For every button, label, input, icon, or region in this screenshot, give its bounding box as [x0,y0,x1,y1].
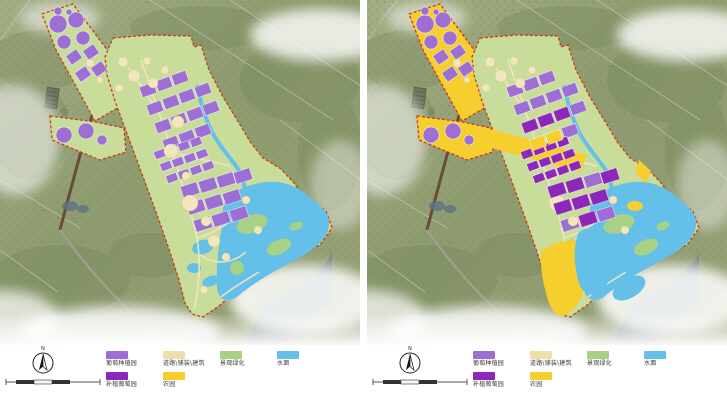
scale-bar [371,376,471,388]
legend-item-greening: 景观绿化 [587,351,644,371]
legend-item-replant: 补植葡萄园 [473,372,530,392]
legend-swatch-farm [530,372,552,380]
legend-item-replant: 补植葡萄园 [106,372,163,392]
compass-north-label: N [41,346,45,352]
legend-item-greening: 景观绿化 [220,351,277,371]
legend-item-water: 水面 [277,351,334,371]
legend-item-road-paving: 道路\铺装\建筑 [163,351,220,371]
north-arrow-icon [406,354,410,370]
left-map [0,0,390,345]
compass-north-label: N [408,346,412,352]
legend-label-road-paving: 道路\铺装\建筑 [163,361,205,368]
legend-swatch-replant [106,372,128,380]
legend-label-greening: 景观绿化 [220,361,245,368]
legend-swatch-greening [220,351,242,359]
legend-label-greening: 景观绿化 [587,361,612,368]
legend-item-farm: 农园 [530,372,587,392]
legend-item-water: 水面 [644,351,701,371]
left-map-footer: N 葡萄种植园 道路\铺装\建筑 景观绿化 [0,346,360,403]
legend-swatch-water [277,351,299,359]
map-legend: 葡萄种植园 道路\铺装\建筑 景观绿化 水面 补植葡萄园 农园 [473,351,701,392]
compass-rose: N [397,344,423,378]
legend-label-vineyard: 葡萄种植园 [473,361,504,368]
legend-item-vineyard: 葡萄种植园 [106,351,163,371]
legend-swatch-road-paving [530,351,552,359]
legend-item-vineyard: 葡萄种植园 [473,351,530,371]
legend-item-road-paving: 道路\铺装\建筑 [530,351,587,371]
legend-swatch-vineyard [473,351,495,359]
legend-swatch-road-paving [163,351,185,359]
legend-label-replant: 补植葡萄园 [473,382,504,389]
legend-label-farm: 农园 [530,382,542,389]
legend-label-water: 水面 [277,361,289,368]
right-map [307,0,727,345]
legend-label-farm: 农园 [163,382,175,389]
map-canvas [0,0,727,345]
north-arrow-icon [39,354,43,370]
legend-swatch-greening [587,351,609,359]
legend-label-water: 水面 [644,361,656,368]
legend-swatch-farm [163,372,185,380]
dual-map-page: N 葡萄种植园 道路\铺装\建筑 景观绿化 [0,0,727,403]
legend-swatch-water [644,351,666,359]
legend-swatch-vineyard [106,351,128,359]
map-legend: 葡萄种植园 道路\铺装\建筑 景观绿化 水面 补植葡萄园 农园 [106,351,334,392]
legend-label-replant: 补植葡萄园 [106,382,137,389]
right-map-footer: N 葡萄种植园 道路\铺装\建筑 景观绿化 [367,346,727,403]
compass-rose: N [30,344,56,378]
scale-bar [4,376,104,388]
legend-label-vineyard: 葡萄种植园 [106,361,137,368]
legend-item-farm: 农园 [163,372,220,392]
legend-label-road-paving: 道路\铺装\建筑 [530,361,572,368]
legend-swatch-replant [473,372,495,380]
